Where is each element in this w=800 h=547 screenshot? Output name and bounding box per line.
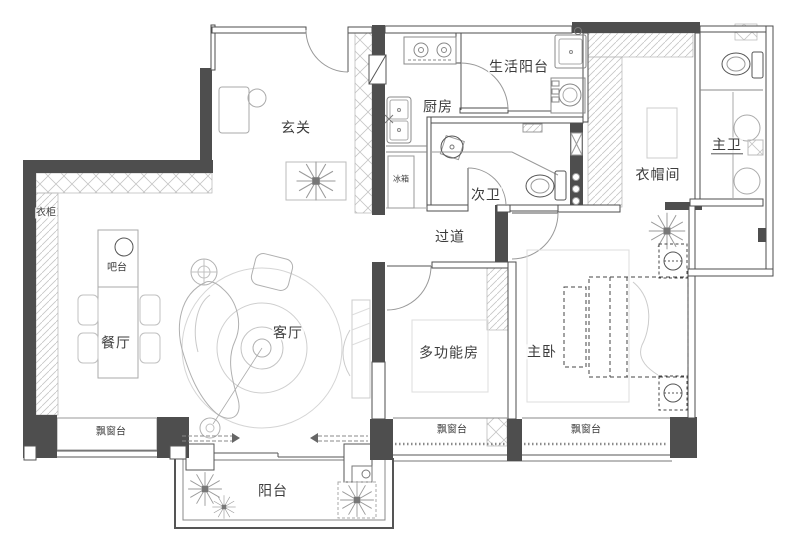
walls-thin [211,25,773,419]
floorplan: 玄关 厨房 生活阳台 次卫 主卫 衣帽间 过道 餐厅 客厅 多功能房 主卧 阳台… [0,0,800,547]
room-label-dining: 餐厅 [100,335,132,350]
floorplan-drawing [0,0,800,547]
feature-label-bay-window-dining: 飘窗台 [95,427,127,438]
room-label-balcony: 阳台 [257,483,289,498]
room-label-living: 客厅 [272,325,304,340]
room-label-cloakroom: 衣帽间 [635,167,682,182]
room-label-multi-room: 多功能房 [418,345,480,360]
cloakroom-island [647,108,677,158]
feature-label-fridge: 冰箱 [392,176,410,185]
feature-label-bar: 吧台 [106,263,128,274]
master-bath-fixtures [700,52,763,199]
laundry-fixtures [551,28,586,114]
room-label-master-bedroom: 主卧 [526,344,558,359]
room-label-second-bath: 次卫 [470,187,502,202]
room-label-master-bath: 主卫 [711,137,743,154]
room-label-entry: 玄关 [280,120,312,135]
storage-hatches [36,24,757,446]
bedroom-furniture [527,244,688,410]
room-label-kitchen: 厨房 [422,99,454,114]
entry-furniture [219,87,346,200]
walls-dark [23,22,766,461]
living-furniture [179,252,370,443]
room-label-corridor: 过道 [434,229,466,244]
feature-label-bay-window-multi: 飘窗台 [436,425,468,436]
feature-label-bay-window-master: 飘窗台 [570,425,602,436]
dining-furniture [78,230,160,378]
feature-label-wardrobe: 衣柜 [35,208,57,219]
room-label-living-balcony: 生活阳台 [488,59,550,74]
